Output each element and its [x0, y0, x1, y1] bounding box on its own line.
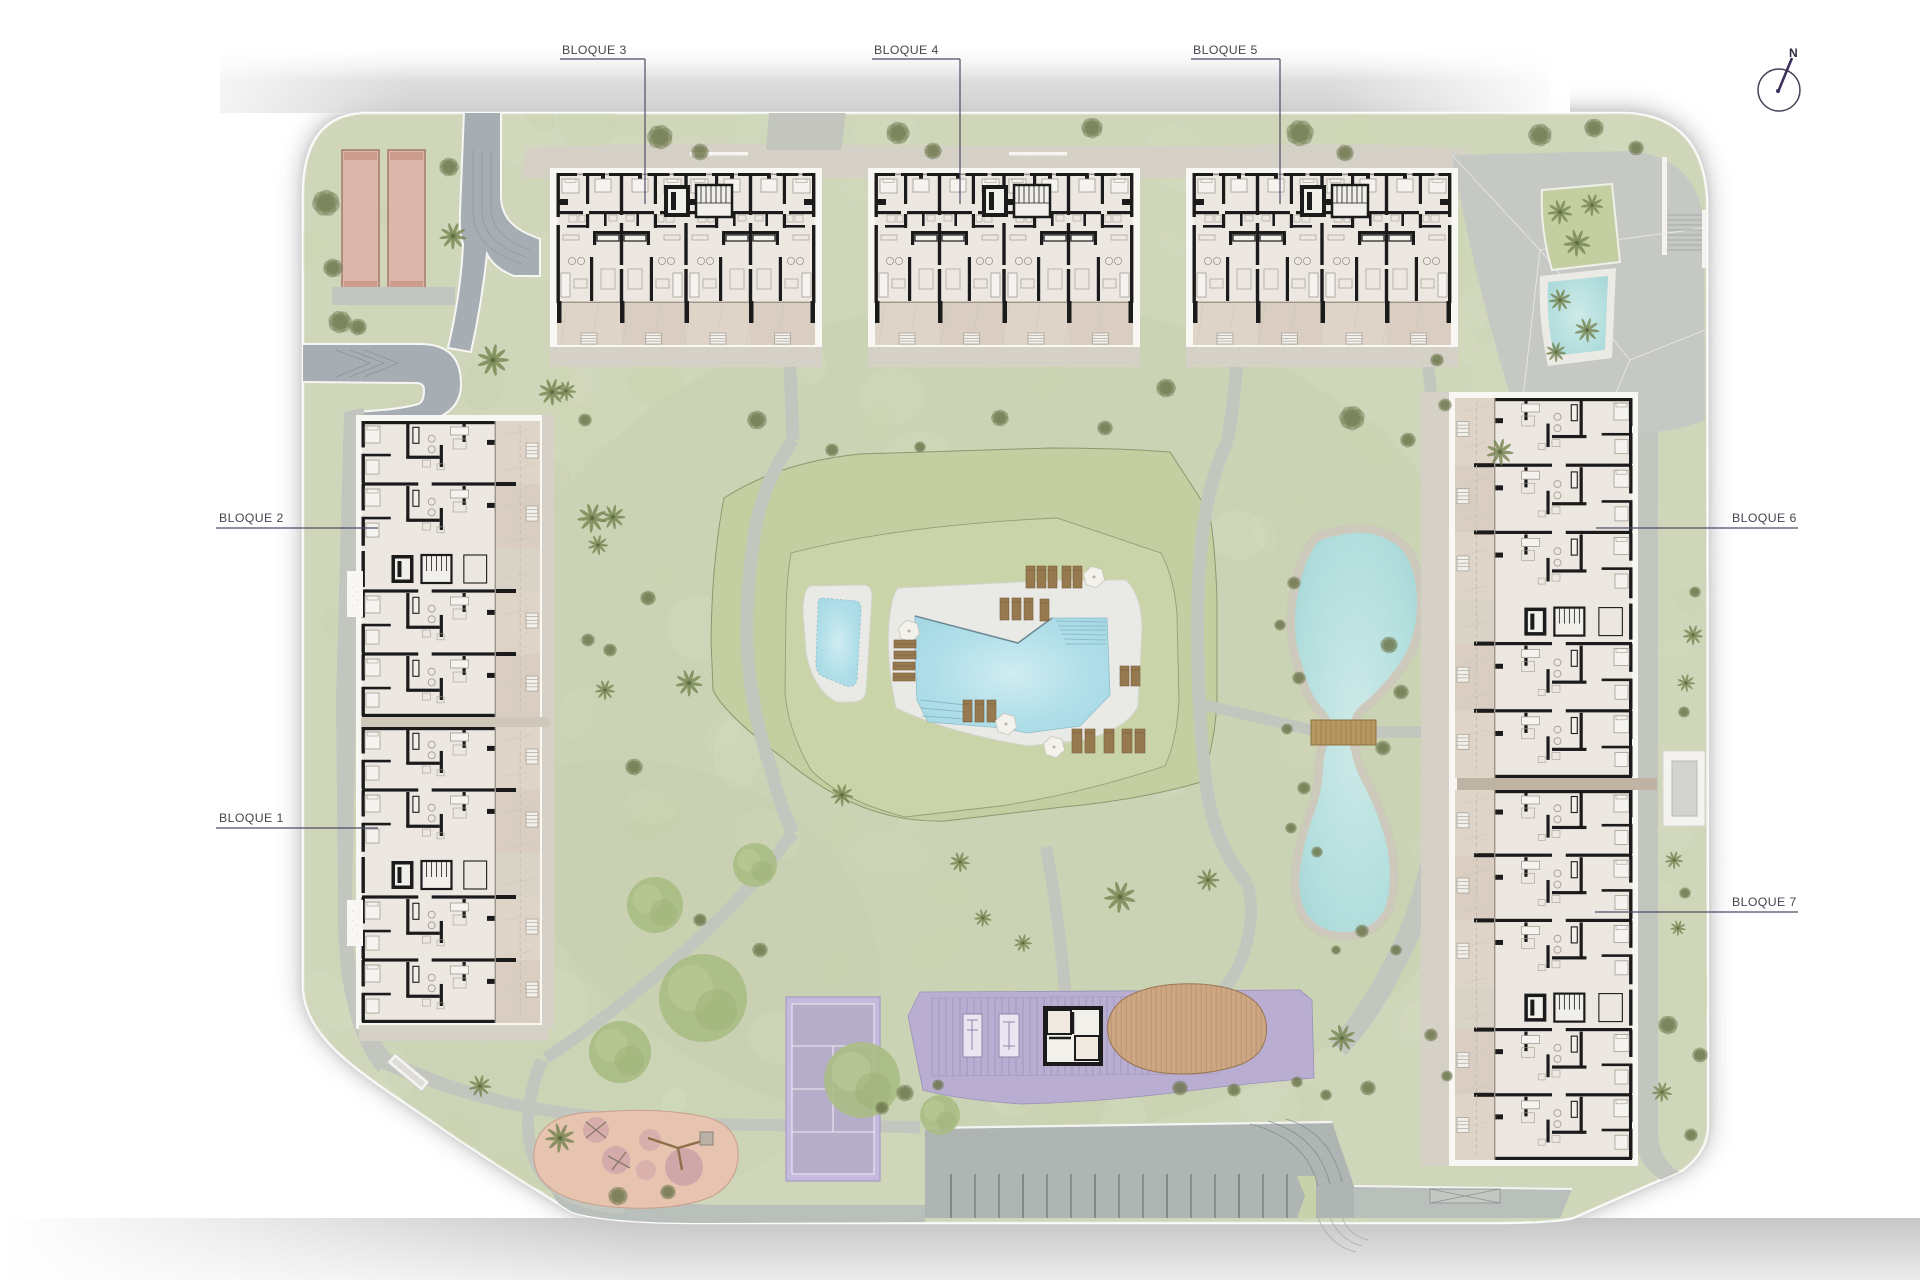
svg-text:BLOQUE 2: BLOQUE 2	[219, 511, 284, 525]
svg-text:BLOQUE 4: BLOQUE 4	[874, 43, 939, 57]
svg-text:N: N	[1789, 46, 1798, 60]
svg-text:BLOQUE 6: BLOQUE 6	[1732, 511, 1797, 525]
svg-text:BLOQUE 7: BLOQUE 7	[1732, 895, 1797, 909]
svg-text:BLOQUE 5: BLOQUE 5	[1193, 43, 1258, 57]
svg-text:BLOQUE 3: BLOQUE 3	[562, 43, 627, 57]
svg-text:BLOQUE 1: BLOQUE 1	[219, 811, 284, 825]
